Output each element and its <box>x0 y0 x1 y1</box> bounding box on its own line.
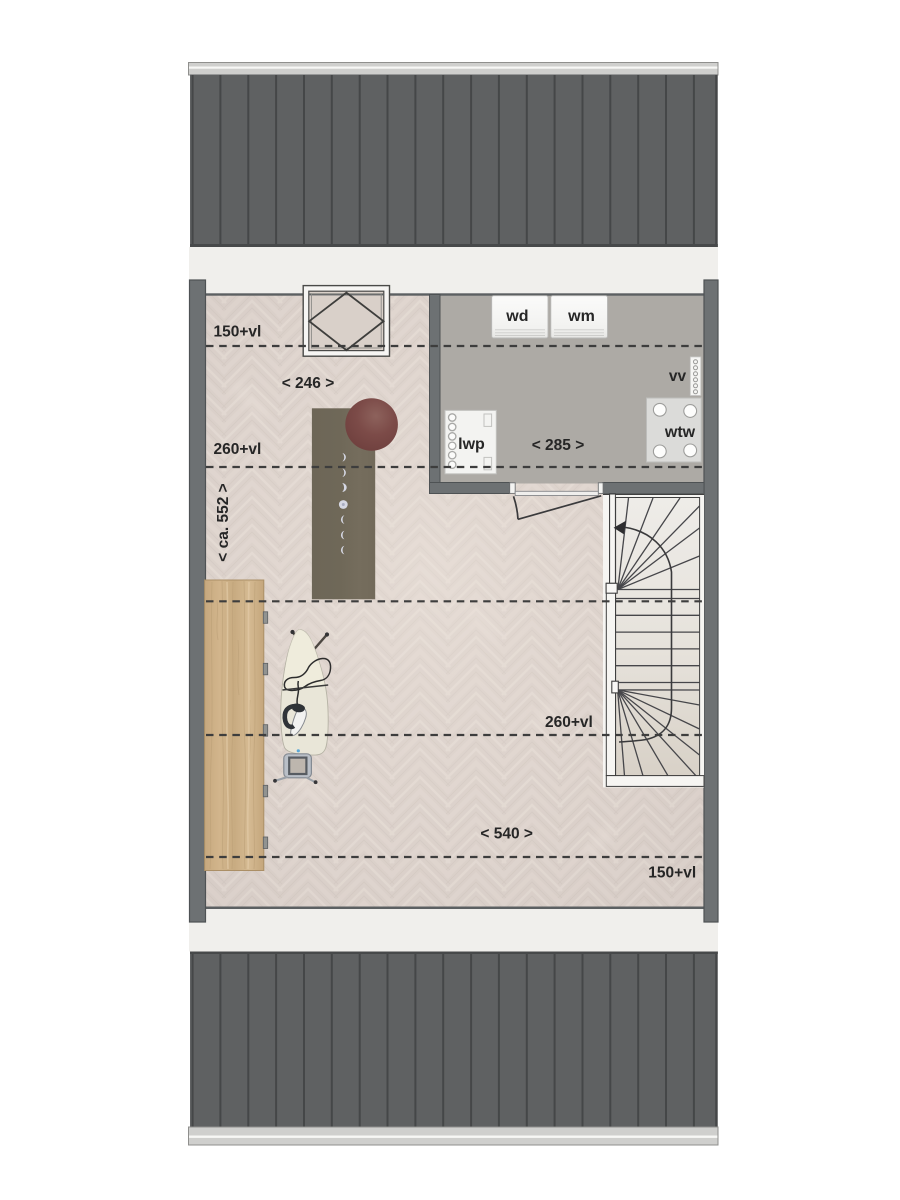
svg-text:< 246 >: < 246 > <box>282 375 335 392</box>
svg-text:< 540 >: < 540 > <box>480 825 533 842</box>
svg-text:wtw: wtw <box>664 424 696 441</box>
svg-text:wd: wd <box>505 308 528 325</box>
svg-text:wm: wm <box>567 308 595 325</box>
svg-text:< ca. 552 >: < ca. 552 > <box>215 483 232 561</box>
svg-text:lwp: lwp <box>458 436 485 453</box>
svg-text:< 285 >: < 285 > <box>532 437 585 454</box>
svg-text:150+vl: 150+vl <box>648 864 696 881</box>
svg-text:260+vl: 260+vl <box>545 714 593 731</box>
svg-text:260+vl: 260+vl <box>214 441 262 458</box>
svg-text:vv: vv <box>669 368 687 385</box>
svg-text:150+vl: 150+vl <box>214 324 262 341</box>
